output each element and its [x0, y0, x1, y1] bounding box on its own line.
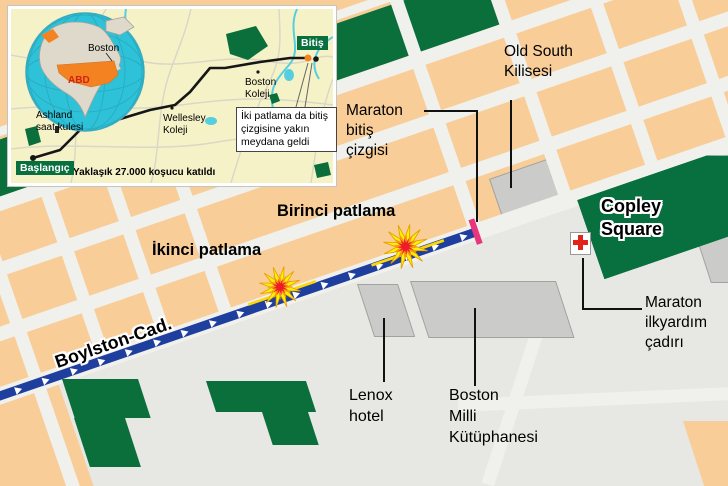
start-badge: Başlangıç	[16, 161, 74, 175]
old-south-leader-line	[510, 100, 512, 188]
boston-college-label: Boston Koleji	[245, 77, 276, 101]
inset-overview-map: ABD Boston Ashland saat kulesi Wellesley…	[8, 6, 336, 186]
greenland-land	[106, 17, 134, 35]
library-building	[410, 281, 575, 338]
green-building-2a	[206, 381, 316, 412]
lenox-label: Lenox hotel	[349, 386, 393, 428]
wellesley-label: Wellesley Koleji	[163, 113, 206, 137]
second-explosion-label: İkinci patlama	[152, 240, 261, 261]
library-leader-line	[474, 308, 476, 386]
finish-line-label: Maraton bitiş çizgisi	[346, 101, 403, 161]
wellesley-dot	[170, 106, 173, 109]
aid-tent-label: Maraton ilkyardım çadırı	[645, 293, 707, 353]
boston-college-dot	[256, 70, 259, 73]
finish-dot-black	[313, 56, 319, 62]
lenox-leader-line	[383, 318, 385, 382]
finish-dot-orange	[305, 55, 312, 62]
explosion-callout: İki patlama da bitiş çizgisine yakın mey…	[236, 107, 337, 152]
aid-tent-leader-h	[582, 308, 642, 310]
ashland-label: Ashland saat kulesi	[36, 110, 83, 134]
first-explosion-label: Birinci patlama	[277, 201, 395, 222]
green-building-1a	[62, 379, 151, 418]
infographic-canvas: Copley Square Old South Kilisesi Maraton…	[0, 0, 728, 486]
globe-country-label: ABD	[68, 75, 90, 86]
finish-badge: Bitiş	[297, 36, 328, 50]
finish-label-leader-h	[424, 110, 478, 112]
runners-caption: Yaklaşık 27.000 koşucu katıldı	[73, 167, 215, 178]
old-south-label: Old South Kilisesi	[504, 42, 573, 82]
finish-label-leader-v	[476, 110, 478, 222]
library-label: Boston Milli Kütüphanesi	[449, 386, 538, 448]
copley-square-label: Copley Square	[601, 195, 662, 242]
first-aid-cross-icon	[570, 232, 591, 255]
inset-map-graphic	[11, 9, 333, 183]
globe-city-label: Boston	[88, 43, 119, 54]
aid-tent-leader-v	[582, 258, 584, 310]
